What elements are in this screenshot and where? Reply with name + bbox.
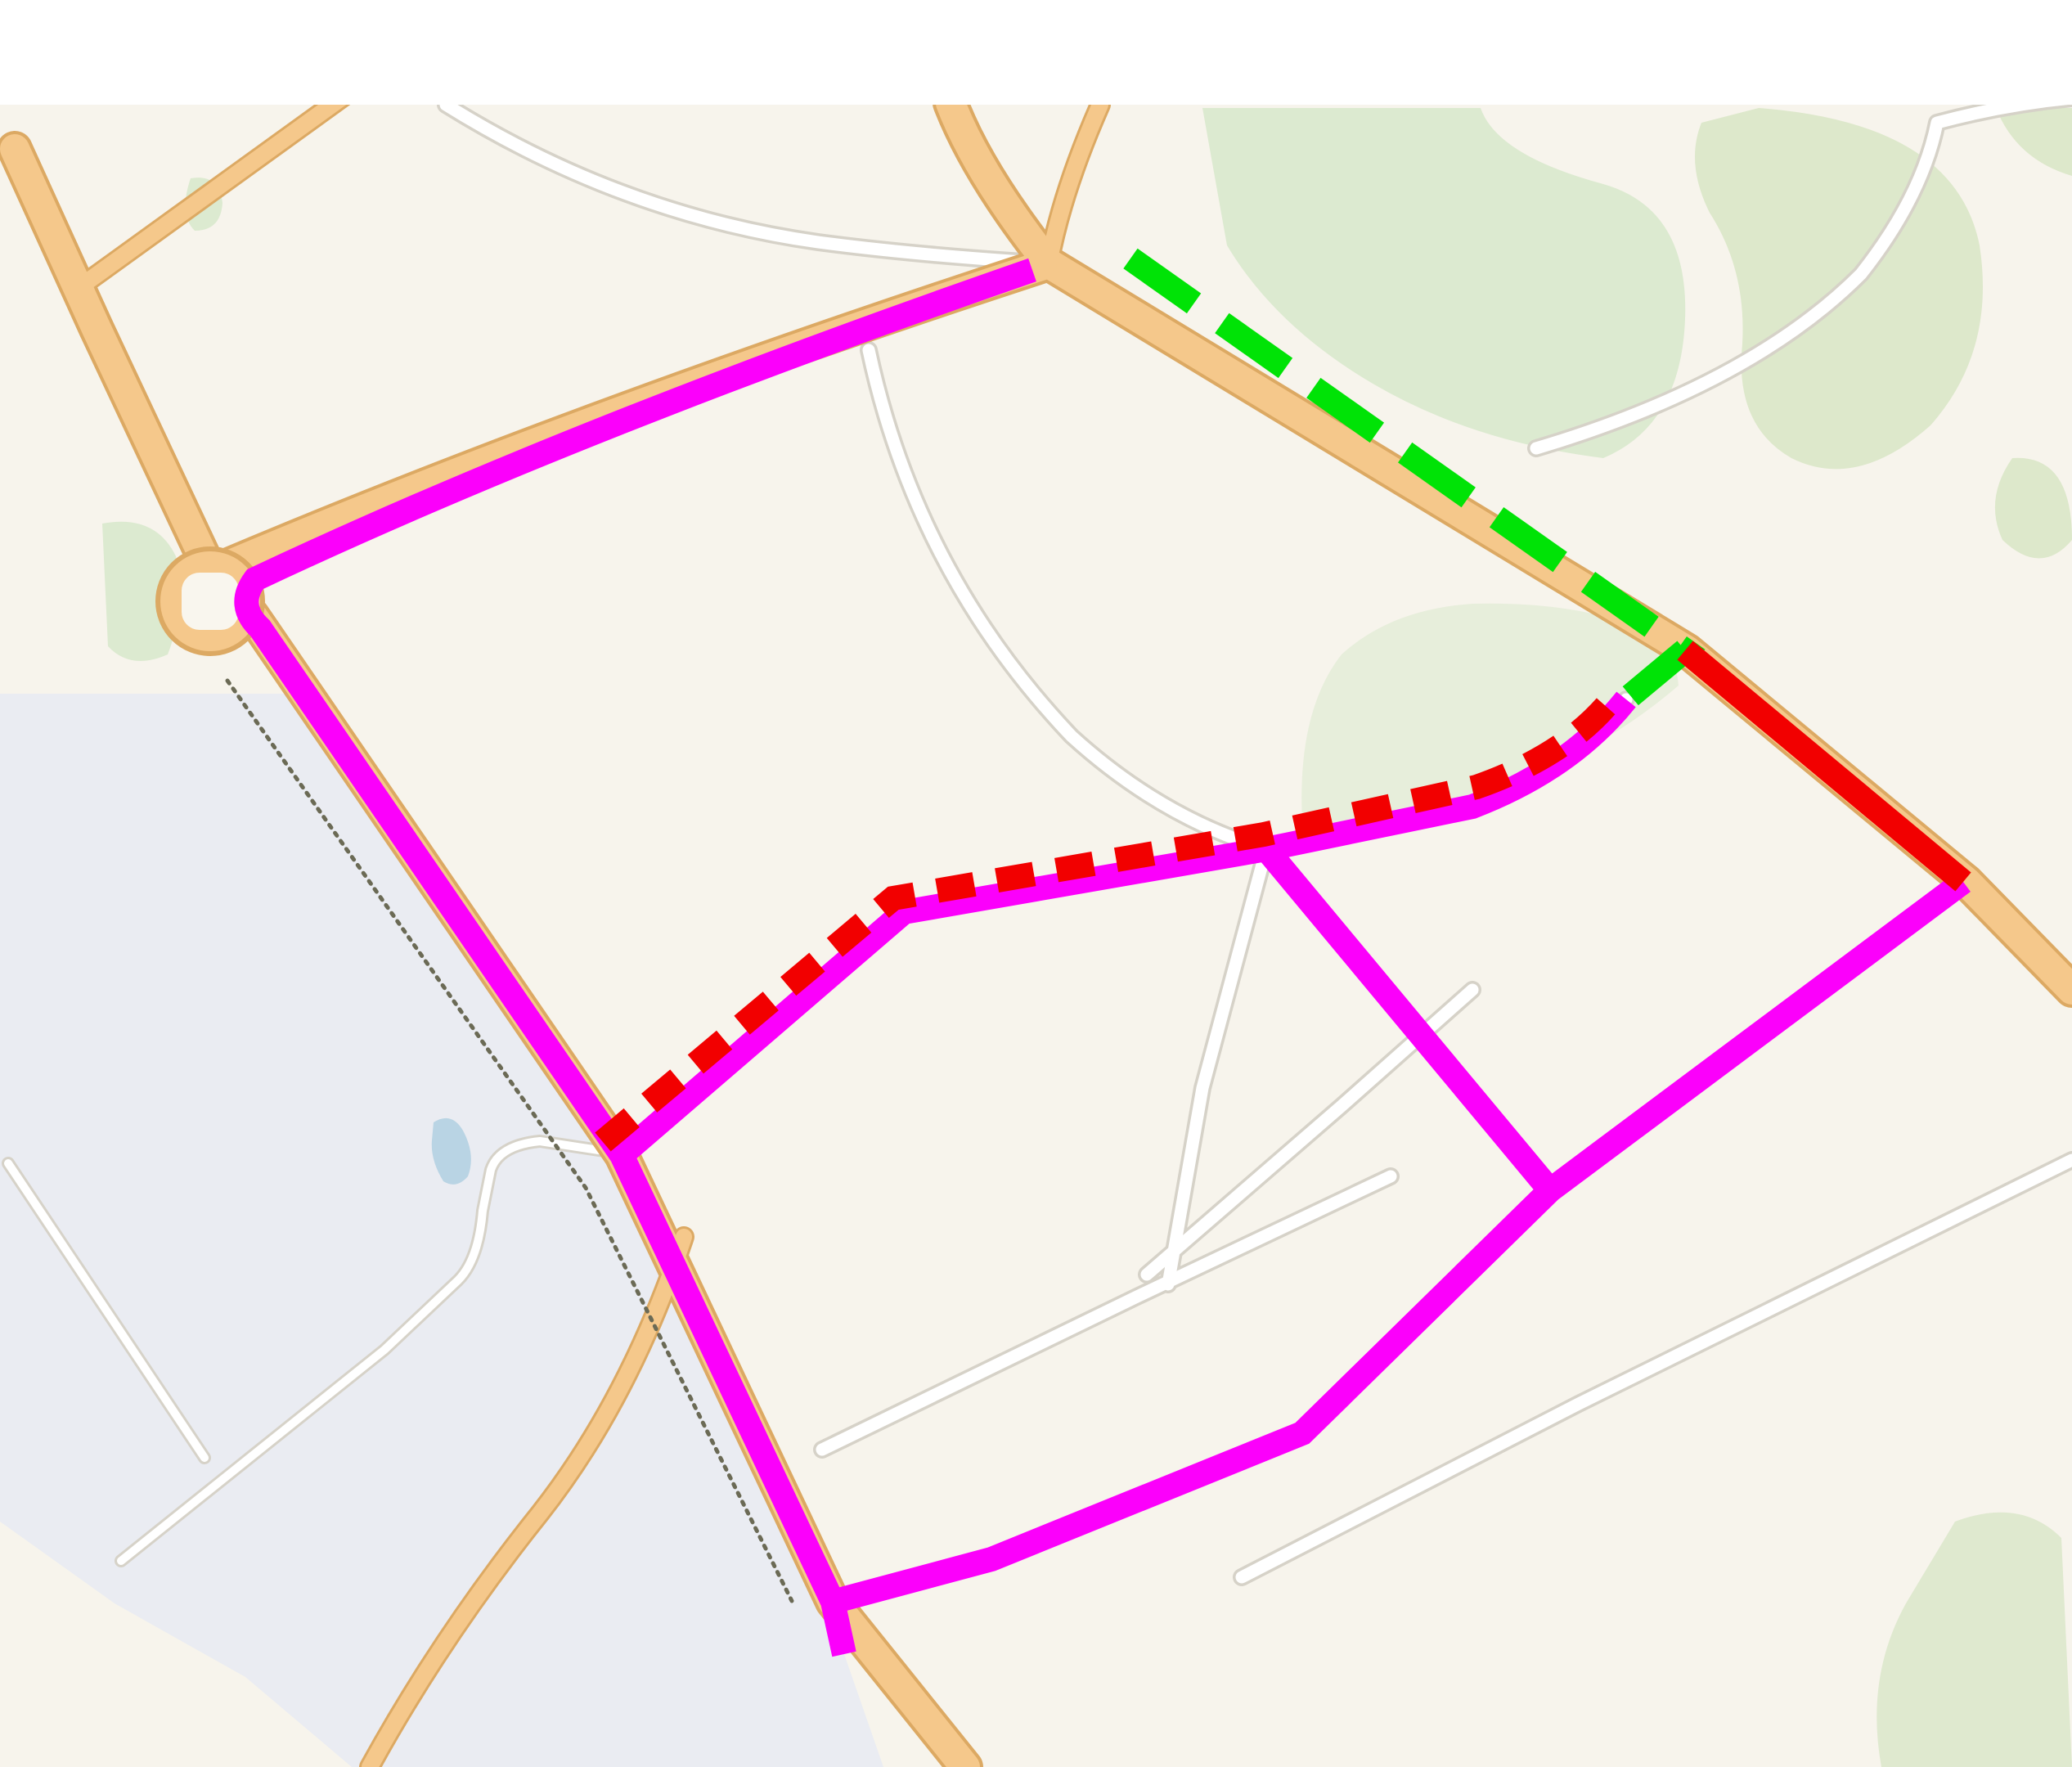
map-canvas — [0, 0, 2072, 1767]
transport-scheme — [0, 0, 2072, 1767]
title-band — [0, 0, 2072, 105]
